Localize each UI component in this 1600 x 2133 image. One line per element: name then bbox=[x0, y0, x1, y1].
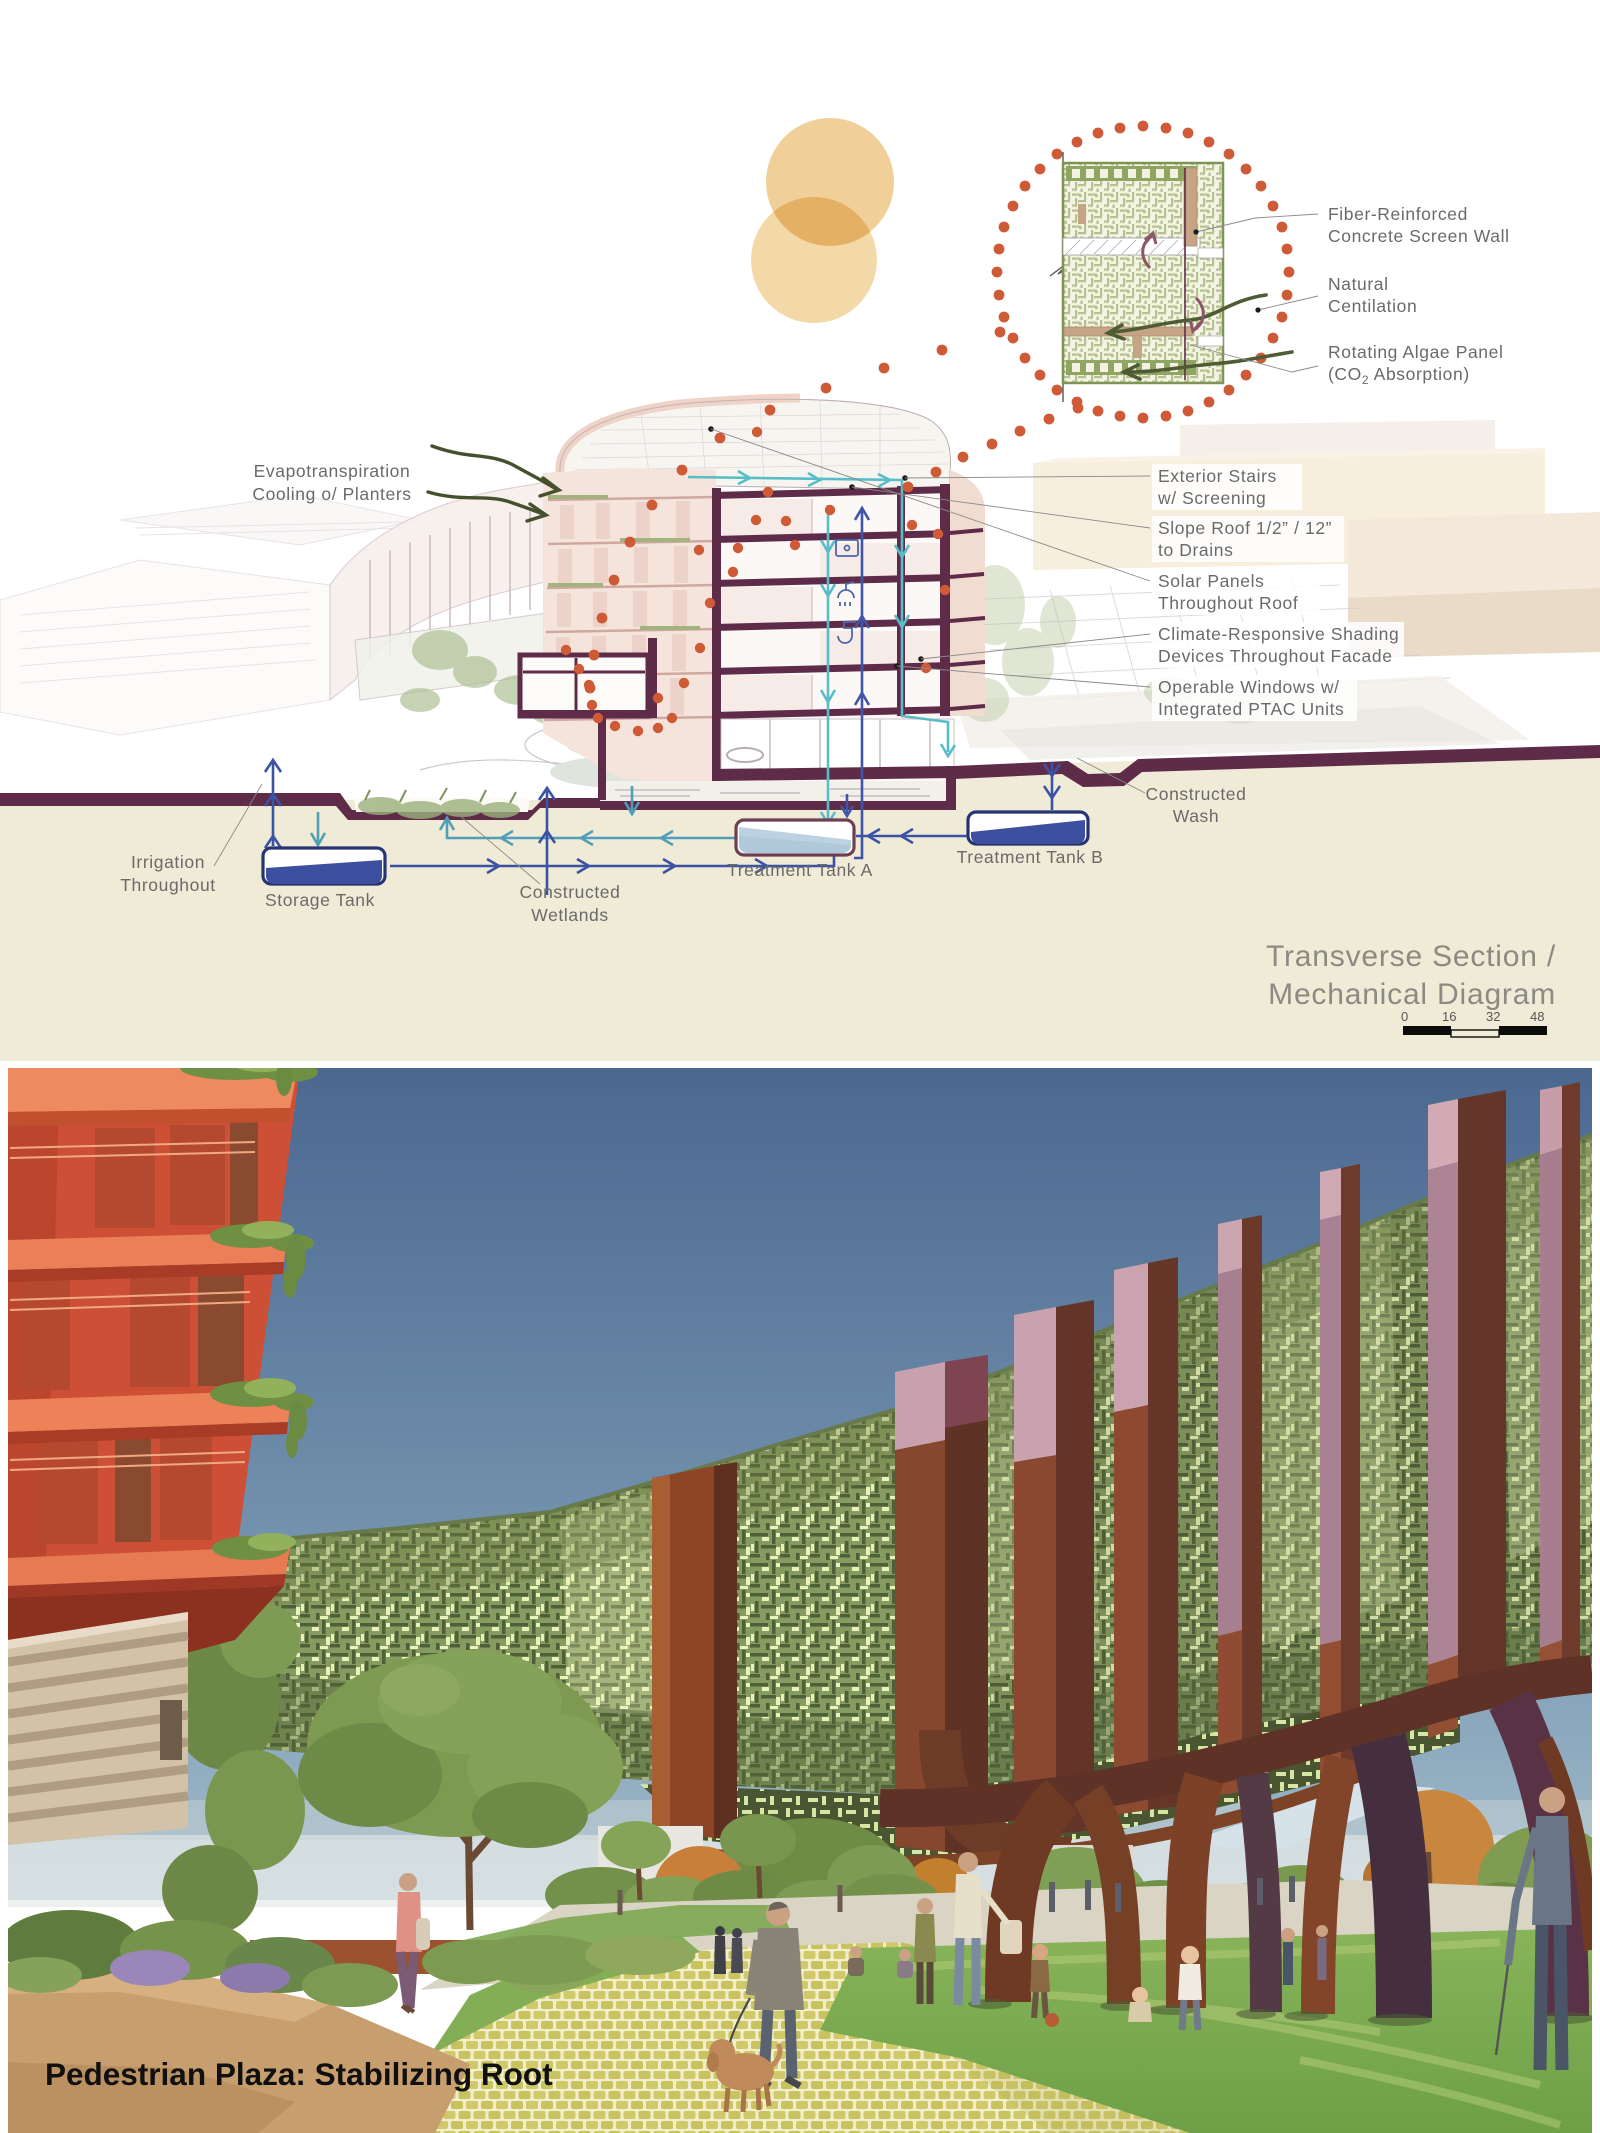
svg-text:to Drains: to Drains bbox=[1158, 540, 1233, 560]
svg-text:Devices Throughout Facade: Devices Throughout Facade bbox=[1158, 646, 1393, 666]
svg-text:Integrated PTAC Units: Integrated PTAC Units bbox=[1158, 699, 1344, 719]
svg-text:Cooling o/ Planters: Cooling o/ Planters bbox=[252, 484, 411, 504]
svg-text:Solar Panels: Solar Panels bbox=[1158, 571, 1264, 591]
svg-text:Constructed: Constructed bbox=[1146, 784, 1247, 804]
svg-text:Natural: Natural bbox=[1328, 274, 1389, 294]
svg-text:Operable Windows w/: Operable Windows w/ bbox=[1158, 677, 1340, 697]
svg-text:Treatment Tank A: Treatment Tank A bbox=[727, 860, 873, 880]
svg-text:Constructed: Constructed bbox=[520, 882, 621, 902]
svg-text:(CO2 Absorption): (CO2 Absorption) bbox=[1328, 364, 1470, 387]
svg-text:w/ Screening: w/ Screening bbox=[1157, 488, 1266, 508]
svg-text:Throughout Roof: Throughout Roof bbox=[1158, 593, 1298, 613]
svg-text:Irrigation: Irrigation bbox=[131, 852, 205, 872]
svg-text:Slope Roof 1/2” / 12”: Slope Roof 1/2” / 12” bbox=[1158, 518, 1332, 538]
svg-text:Evapotranspiration: Evapotranspiration bbox=[254, 461, 411, 481]
svg-text:32: 32 bbox=[1486, 1009, 1500, 1024]
svg-text:Pedestrian Plaza: Stabilizing: Pedestrian Plaza: Stabilizing Root bbox=[45, 2056, 553, 2092]
svg-text:Wetlands: Wetlands bbox=[531, 905, 608, 925]
svg-text:Centilation: Centilation bbox=[1328, 296, 1417, 316]
svg-text:Concrete Screen Wall: Concrete Screen Wall bbox=[1328, 226, 1510, 246]
svg-text:Treatment Tank B: Treatment Tank B bbox=[957, 847, 1104, 867]
svg-text:Throughout: Throughout bbox=[120, 875, 216, 895]
svg-text:16: 16 bbox=[1442, 1009, 1456, 1024]
svg-text:48: 48 bbox=[1530, 1009, 1544, 1024]
svg-text:Storage Tank: Storage Tank bbox=[265, 890, 375, 910]
svg-text:Exterior Stairs: Exterior Stairs bbox=[1158, 466, 1277, 486]
svg-text:Fiber-Reinforced: Fiber-Reinforced bbox=[1328, 204, 1468, 224]
svg-text:Wash: Wash bbox=[1173, 806, 1219, 826]
svg-text:0: 0 bbox=[1401, 1009, 1408, 1024]
svg-text:Rotating Algae Panel: Rotating Algae Panel bbox=[1328, 342, 1503, 362]
svg-text:Transverse Section /: Transverse Section / bbox=[1266, 940, 1556, 973]
svg-text:Mechanical Diagram: Mechanical Diagram bbox=[1268, 978, 1556, 1011]
svg-text:Climate-Responsive Shading: Climate-Responsive Shading bbox=[1158, 624, 1399, 644]
